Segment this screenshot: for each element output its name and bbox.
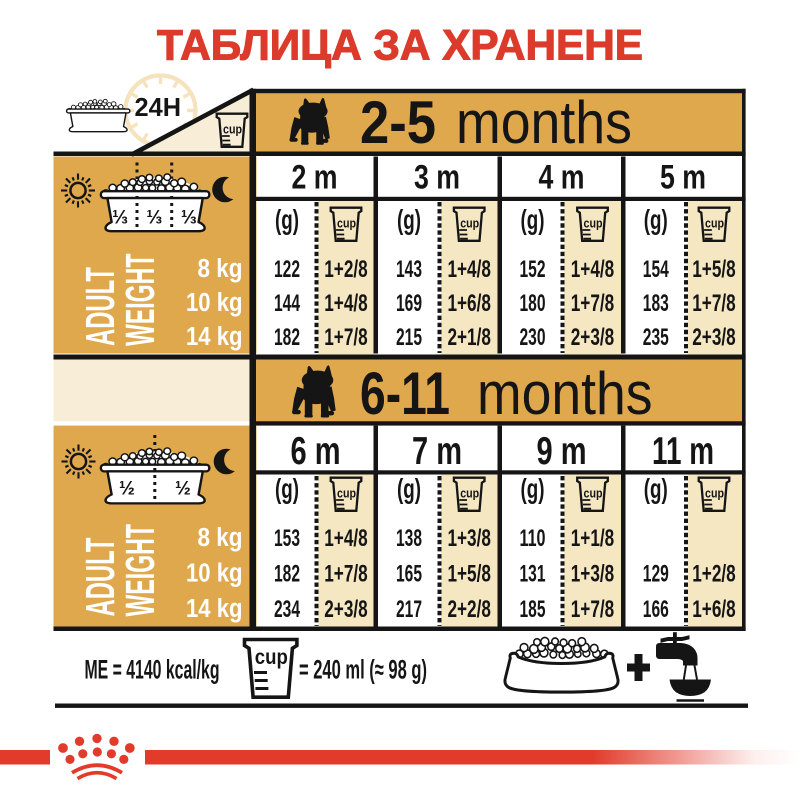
svg-text:ME = 4140 kcal/kg: ME = 4140 kcal/kg	[85, 655, 220, 685]
svg-text:(g): (g)	[275, 473, 299, 504]
svg-text:(g): (g)	[521, 473, 545, 504]
svg-text:WEIGHT: WEIGHT	[117, 524, 163, 617]
svg-text:months: months	[456, 89, 632, 156]
svg-text:235: 235	[643, 324, 669, 351]
svg-text:1+7/8: 1+7/8	[324, 561, 368, 588]
svg-text:2 m: 2 m	[292, 158, 338, 196]
svg-text:⅓: ⅓	[112, 208, 128, 229]
svg-text:10 kg: 10 kg	[186, 289, 243, 317]
svg-text:11 m: 11 m	[652, 430, 714, 473]
svg-text:1+7/8: 1+7/8	[571, 290, 615, 317]
svg-text:1+4/8: 1+4/8	[324, 290, 368, 317]
svg-text:14 kg: 14 kg	[186, 595, 243, 623]
svg-text:(g): (g)	[275, 204, 299, 235]
svg-text:182: 182	[274, 561, 300, 588]
svg-text:24H: 24H	[135, 92, 182, 122]
svg-text:14 kg: 14 kg	[186, 323, 243, 351]
svg-text:110: 110	[520, 525, 546, 552]
svg-text:7 m: 7 m	[412, 430, 462, 473]
svg-text:234: 234	[274, 596, 300, 623]
svg-text:182: 182	[274, 324, 300, 351]
svg-text:165: 165	[396, 561, 422, 588]
svg-text:144: 144	[274, 290, 300, 317]
svg-text:1+7/8: 1+7/8	[571, 596, 615, 623]
svg-text:215: 215	[396, 324, 422, 351]
svg-text:185: 185	[520, 596, 546, 623]
svg-text:166: 166	[643, 596, 669, 623]
svg-text:(g): (g)	[397, 204, 421, 235]
svg-text:months: months	[477, 360, 653, 427]
svg-text:(g): (g)	[397, 473, 421, 504]
svg-text:3 m: 3 m	[414, 158, 460, 196]
svg-text:230: 230	[520, 324, 546, 351]
svg-text:1+5/8: 1+5/8	[692, 256, 736, 283]
svg-text:= 240 ml (≈ 98 g): = 240 ml (≈ 98 g)	[299, 655, 427, 685]
svg-text:1+2/8: 1+2/8	[324, 256, 368, 283]
svg-text:⅓: ⅓	[181, 208, 197, 229]
svg-text:5 m: 5 m	[660, 158, 706, 196]
svg-text:129: 129	[643, 561, 669, 588]
svg-text:cup: cup	[255, 646, 288, 669]
svg-text:2+2/8: 2+2/8	[447, 596, 491, 623]
svg-text:122: 122	[274, 256, 300, 283]
svg-text:1+2/8: 1+2/8	[692, 561, 736, 588]
svg-text:2+3/8: 2+3/8	[692, 324, 736, 351]
svg-text:152: 152	[520, 256, 546, 283]
svg-text:1+7/8: 1+7/8	[692, 290, 736, 317]
svg-text:180: 180	[520, 290, 546, 317]
svg-text:ТАБЛИЦА ЗА ХРАНЕНЕ: ТАБЛИЦА ЗА ХРАНЕНЕ	[157, 23, 643, 70]
svg-text:1+3/8: 1+3/8	[571, 561, 615, 588]
svg-text:1+1/8: 1+1/8	[571, 525, 615, 552]
svg-text:2+1/8: 2+1/8	[447, 324, 491, 351]
svg-text:1+4/8: 1+4/8	[324, 525, 368, 552]
svg-text:154: 154	[643, 256, 669, 283]
svg-text:2+3/8: 2+3/8	[571, 324, 615, 351]
svg-text:1+5/8: 1+5/8	[447, 561, 491, 588]
svg-text:(g): (g)	[644, 204, 668, 235]
svg-text:2-5: 2-5	[360, 89, 436, 156]
svg-text:153: 153	[274, 525, 300, 552]
svg-text:138: 138	[396, 525, 422, 552]
svg-text:9 m: 9 m	[537, 430, 587, 473]
svg-text:1+7/8: 1+7/8	[324, 324, 368, 351]
svg-text:½: ½	[119, 479, 135, 500]
svg-text:1+4/8: 1+4/8	[447, 256, 491, 283]
svg-text:1+3/8: 1+3/8	[447, 525, 491, 552]
svg-text:183: 183	[643, 290, 669, 317]
svg-text:143: 143	[396, 256, 422, 283]
svg-text:6 m: 6 m	[291, 430, 341, 473]
svg-text:½: ½	[175, 479, 191, 500]
svg-text:1+6/8: 1+6/8	[692, 596, 736, 623]
svg-text:WEIGHT: WEIGHT	[117, 254, 163, 347]
svg-text:217: 217	[396, 596, 422, 623]
svg-text:(g): (g)	[521, 204, 545, 235]
svg-text:⅓: ⅓	[146, 208, 162, 229]
svg-text:10 kg: 10 kg	[186, 560, 243, 588]
svg-text:(g): (g)	[644, 473, 668, 504]
svg-text:131: 131	[520, 561, 546, 588]
svg-text:6-11: 6-11	[360, 360, 450, 427]
svg-text:4 m: 4 m	[539, 158, 585, 196]
svg-text:8 kg: 8 kg	[198, 255, 243, 283]
svg-text:8 kg: 8 kg	[198, 524, 243, 552]
svg-text:2+3/8: 2+3/8	[324, 596, 368, 623]
svg-text:169: 169	[396, 290, 422, 317]
svg-text:1+4/8: 1+4/8	[571, 256, 615, 283]
svg-text:1+6/8: 1+6/8	[447, 290, 491, 317]
